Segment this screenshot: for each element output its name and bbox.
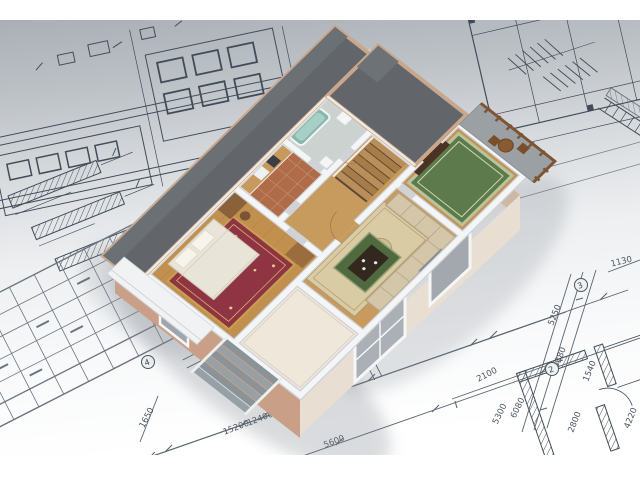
axis-marker-3: 3 — [575, 279, 588, 292]
bottom-border — [0, 455, 640, 480]
top-border — [0, 0, 640, 20]
axis-marker-4: 4 — [142, 356, 155, 369]
architectural-render: 1650 15200 12400 5600 2300 2100 5300 608… — [0, 0, 640, 480]
render-canvas: 1650 15200 12400 5600 2300 2100 5300 608… — [0, 0, 640, 480]
axis-marker-2: 2 — [546, 363, 559, 376]
